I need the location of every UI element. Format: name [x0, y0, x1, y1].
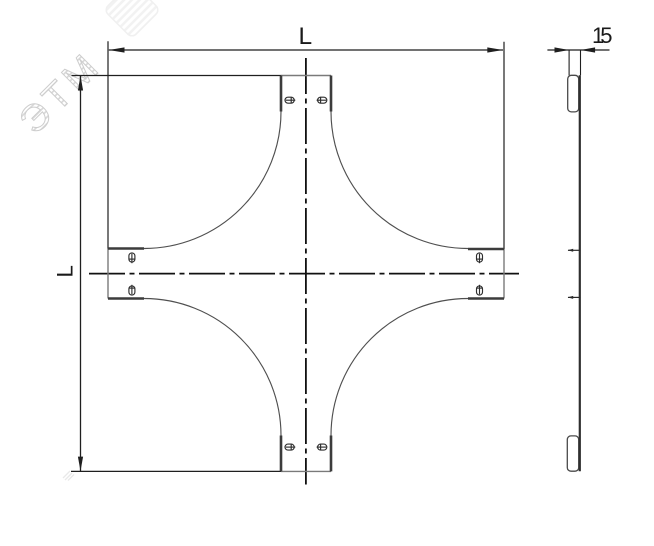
svg-text:L: L [52, 265, 77, 278]
svg-text:L: L [299, 23, 313, 50]
